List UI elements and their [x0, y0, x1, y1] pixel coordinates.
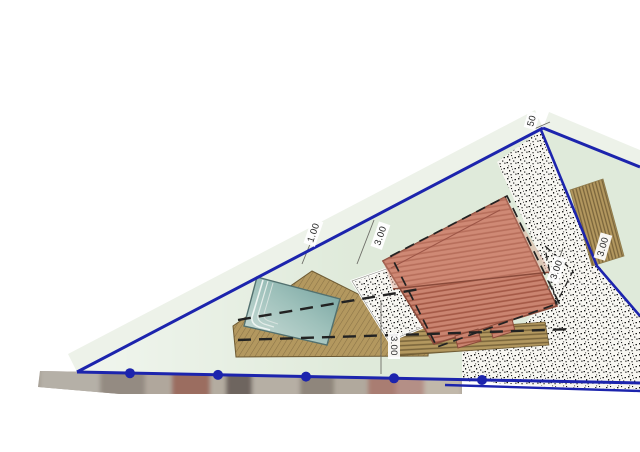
- survey-point-dot: [301, 372, 311, 382]
- survey-point-dot: [389, 373, 399, 383]
- dimension-label-bottom-deck: 3.00: [388, 333, 400, 359]
- survey-point-dot: [477, 375, 487, 385]
- site-plan-page: 1.00 3.00 3.00 3.00 3.00 50: [0, 0, 640, 452]
- survey-point-dot: [125, 368, 135, 378]
- site-plan-svg: 1.00 3.00 3.00 3.00 3.00 50: [0, 0, 640, 452]
- survey-point-dot: [213, 370, 223, 380]
- dimension-text: 3.00: [388, 336, 399, 356]
